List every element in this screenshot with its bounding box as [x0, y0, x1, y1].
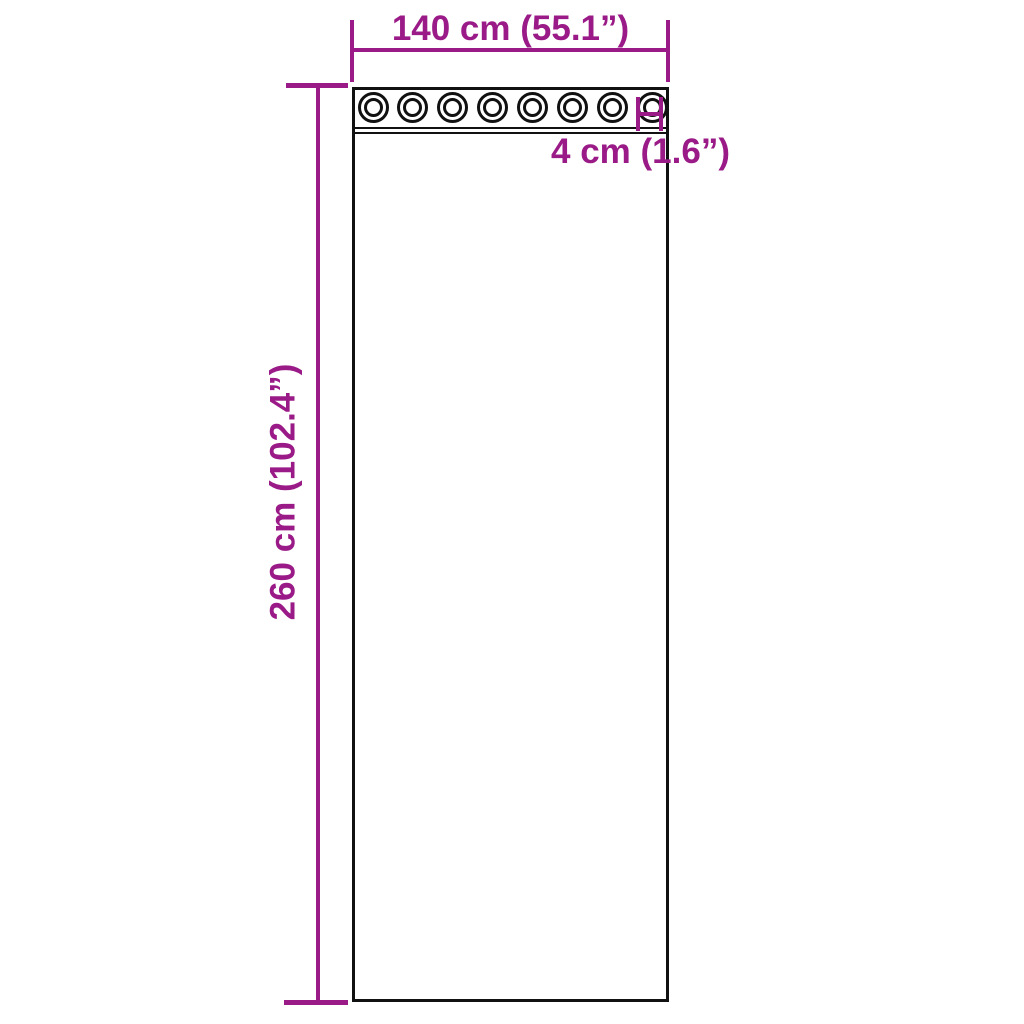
grommet-icon — [397, 92, 428, 123]
grommet-hole — [403, 98, 422, 117]
height-dimension-bottom-tick — [284, 1000, 348, 1005]
grommet-hole — [443, 98, 462, 117]
grommet-hole — [364, 98, 383, 117]
width-dimension-label: 140 cm (55.1”) — [352, 11, 669, 46]
grommet-dimension-label: 4 cm (1.6”) — [450, 134, 730, 169]
grommet-icon — [597, 92, 628, 123]
grommet-hole — [563, 98, 582, 117]
width-dimension-line — [352, 48, 669, 52]
curtain-panel — [352, 87, 669, 1002]
grommet-icon — [358, 92, 389, 123]
grommet-icon — [517, 92, 548, 123]
height-dimension-label: 260 cm (102.4”) — [266, 364, 301, 621]
grommet-hole — [523, 98, 542, 117]
grommet-dimension-bar — [636, 112, 663, 116]
height-dimension-top-tick — [286, 83, 348, 88]
grommet-band-stitch-line — [355, 127, 666, 129]
grommet-icon — [557, 92, 588, 123]
diagram-canvas: 140 cm (55.1”) 260 cm (102.4”) 4 cm (1.6… — [0, 0, 1024, 1024]
grommet-icon — [477, 92, 508, 123]
height-dimension-line — [316, 84, 320, 1003]
grommet-icon — [437, 92, 468, 123]
grommet-hole — [483, 98, 502, 117]
grommet-hole — [603, 98, 622, 117]
